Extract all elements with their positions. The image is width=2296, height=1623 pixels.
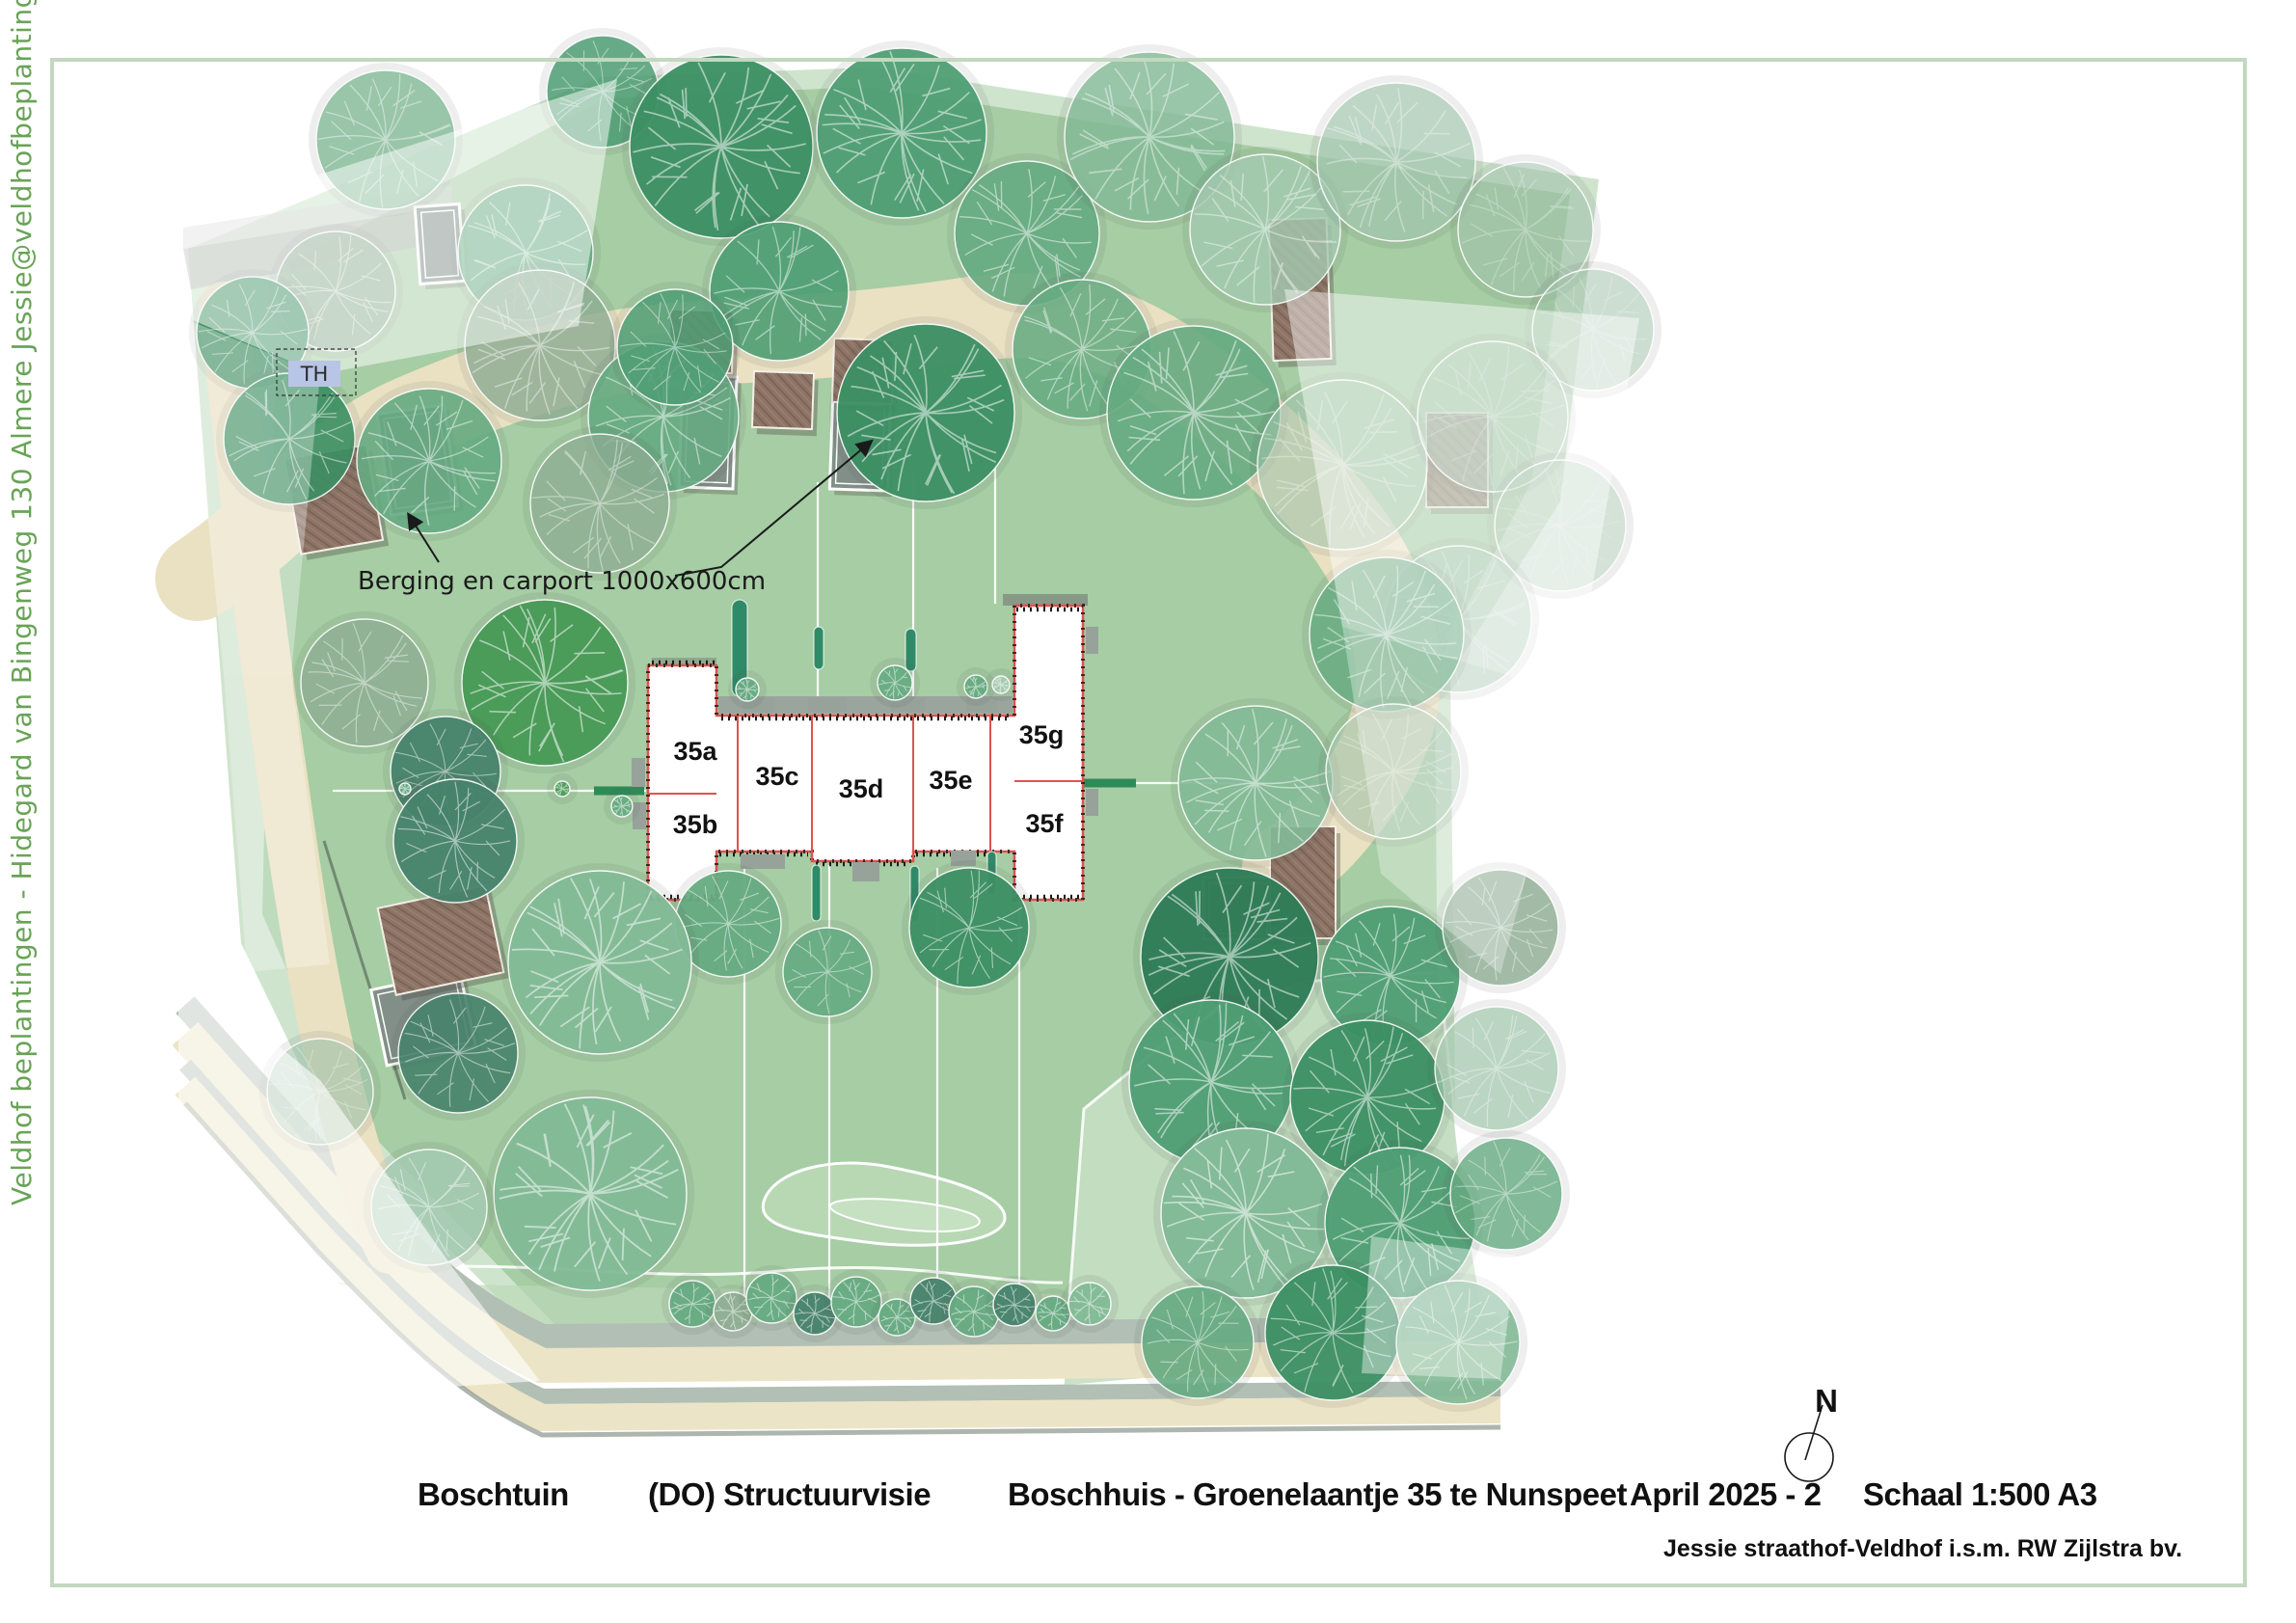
plan-sheet: Veldhof beplantingen - Hidegard van Bing… xyxy=(0,0,2296,1623)
unit-label-35f: 35f xyxy=(1025,809,1064,838)
tree-symbol xyxy=(500,863,699,1062)
footer-credit: Jessie straathof-Veldhof i.s.m. RW Zijls… xyxy=(1663,1537,2182,1561)
terrace-slab xyxy=(1086,627,1098,654)
shrub-symbol xyxy=(392,775,419,802)
tree-symbol xyxy=(486,1090,694,1298)
shrub-symbol xyxy=(1061,1275,1119,1333)
unit-label-35b: 35b xyxy=(673,810,718,839)
unit-label-35d: 35d xyxy=(839,774,884,803)
tree-symbol xyxy=(391,986,526,1121)
unit-label-35c: 35c xyxy=(755,762,798,791)
terrace-slab xyxy=(1086,789,1098,816)
tree-symbol xyxy=(829,316,1022,509)
tree-symbol xyxy=(1427,999,1566,1138)
terrace-slab xyxy=(632,758,645,787)
tree-symbol xyxy=(902,860,1037,995)
north-label: N xyxy=(1815,1383,1838,1419)
terrace-slab xyxy=(808,698,847,712)
footer-project: Boschtuin xyxy=(418,1478,569,1510)
shrub-symbol xyxy=(985,668,1017,701)
north-compass: N xyxy=(1785,1383,1838,1481)
tree-symbol xyxy=(1134,1279,1261,1406)
hedge-column xyxy=(812,865,821,921)
footer-date: April 2025 - 2 xyxy=(1630,1478,1821,1510)
tree-symbol xyxy=(609,282,741,413)
shrub-symbol xyxy=(547,773,578,804)
th-label: TH xyxy=(300,363,329,386)
berging-annotation: Berging en carport 1000x600cm xyxy=(358,567,766,596)
footer-phase: (DO) Structuurvisie xyxy=(648,1478,931,1510)
unit-label-35g: 35g xyxy=(1019,720,1065,749)
compass-circle xyxy=(1785,1433,1833,1481)
carport-roof-brown xyxy=(752,371,819,436)
footer-scale: Schaal 1:500 A3 xyxy=(1863,1478,2097,1510)
shrub-symbol xyxy=(728,670,767,709)
unit-label-35e: 35e xyxy=(929,766,972,795)
tree-symbol xyxy=(1443,1130,1570,1258)
tree-symbol xyxy=(1171,698,1340,868)
footer-location: Boschhuis - Groenelaantje 35 te Nunspeet xyxy=(1008,1478,1627,1510)
tree-symbol xyxy=(870,658,920,708)
unit-label-35a: 35a xyxy=(673,737,717,766)
shrub-symbol xyxy=(604,788,640,825)
site-plan: TH Berging en carport 1000x600cm 35a 35b… xyxy=(0,0,2296,1623)
hedge-column xyxy=(814,627,824,669)
terrace-slab xyxy=(852,862,879,881)
tree-symbol xyxy=(775,920,879,1024)
tree-symbol xyxy=(523,426,677,581)
